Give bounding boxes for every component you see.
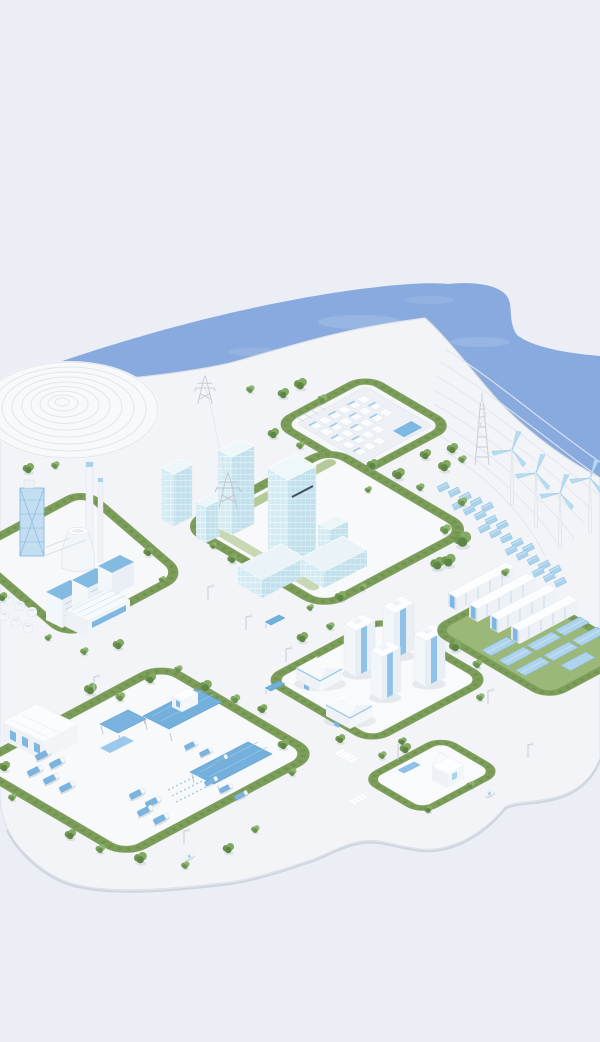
chimney xyxy=(98,478,103,562)
smart-city-3d-model xyxy=(0,0,600,1042)
city-illustration-canvas xyxy=(0,0,600,1042)
